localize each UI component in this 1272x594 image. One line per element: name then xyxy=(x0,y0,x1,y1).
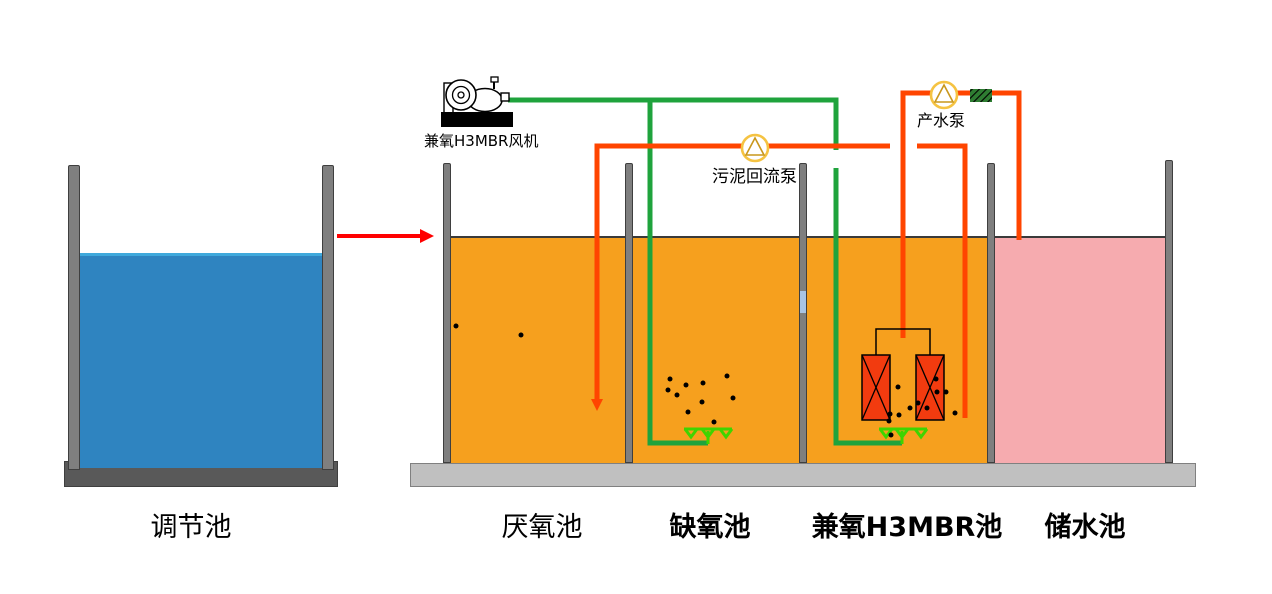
anaerobic-tank-label: 厌氧池 xyxy=(502,505,583,544)
mbr-tank-label: 兼氧H3MBR池 xyxy=(812,505,1003,544)
sludge-discharge-arrowhead xyxy=(591,399,603,411)
sludge-return-pump-label: 污泥回流泵 xyxy=(712,162,797,187)
pump-icon xyxy=(742,135,768,161)
sludge-particles-anoxic xyxy=(666,374,736,425)
blower-icon xyxy=(441,77,513,127)
blower-label: 兼氧H3MBR风机 xyxy=(424,130,538,151)
pump-icon xyxy=(931,82,957,108)
air-pipe xyxy=(508,100,902,443)
membrane-module-icon xyxy=(862,355,890,420)
anoxic-tank-label: 缺氧池 xyxy=(670,505,751,544)
membrane-module-icon xyxy=(916,355,944,420)
inflow-arrow xyxy=(337,229,434,243)
sludge-particles-anaerobic xyxy=(454,324,524,338)
valve-icon xyxy=(970,89,992,102)
product-water-pump-label: 产水泵 xyxy=(917,107,965,131)
storage-tank-label: 储水池 xyxy=(1045,505,1126,544)
regulating-tank-label: 调节池 xyxy=(151,505,232,544)
membrane-modules xyxy=(862,329,944,420)
